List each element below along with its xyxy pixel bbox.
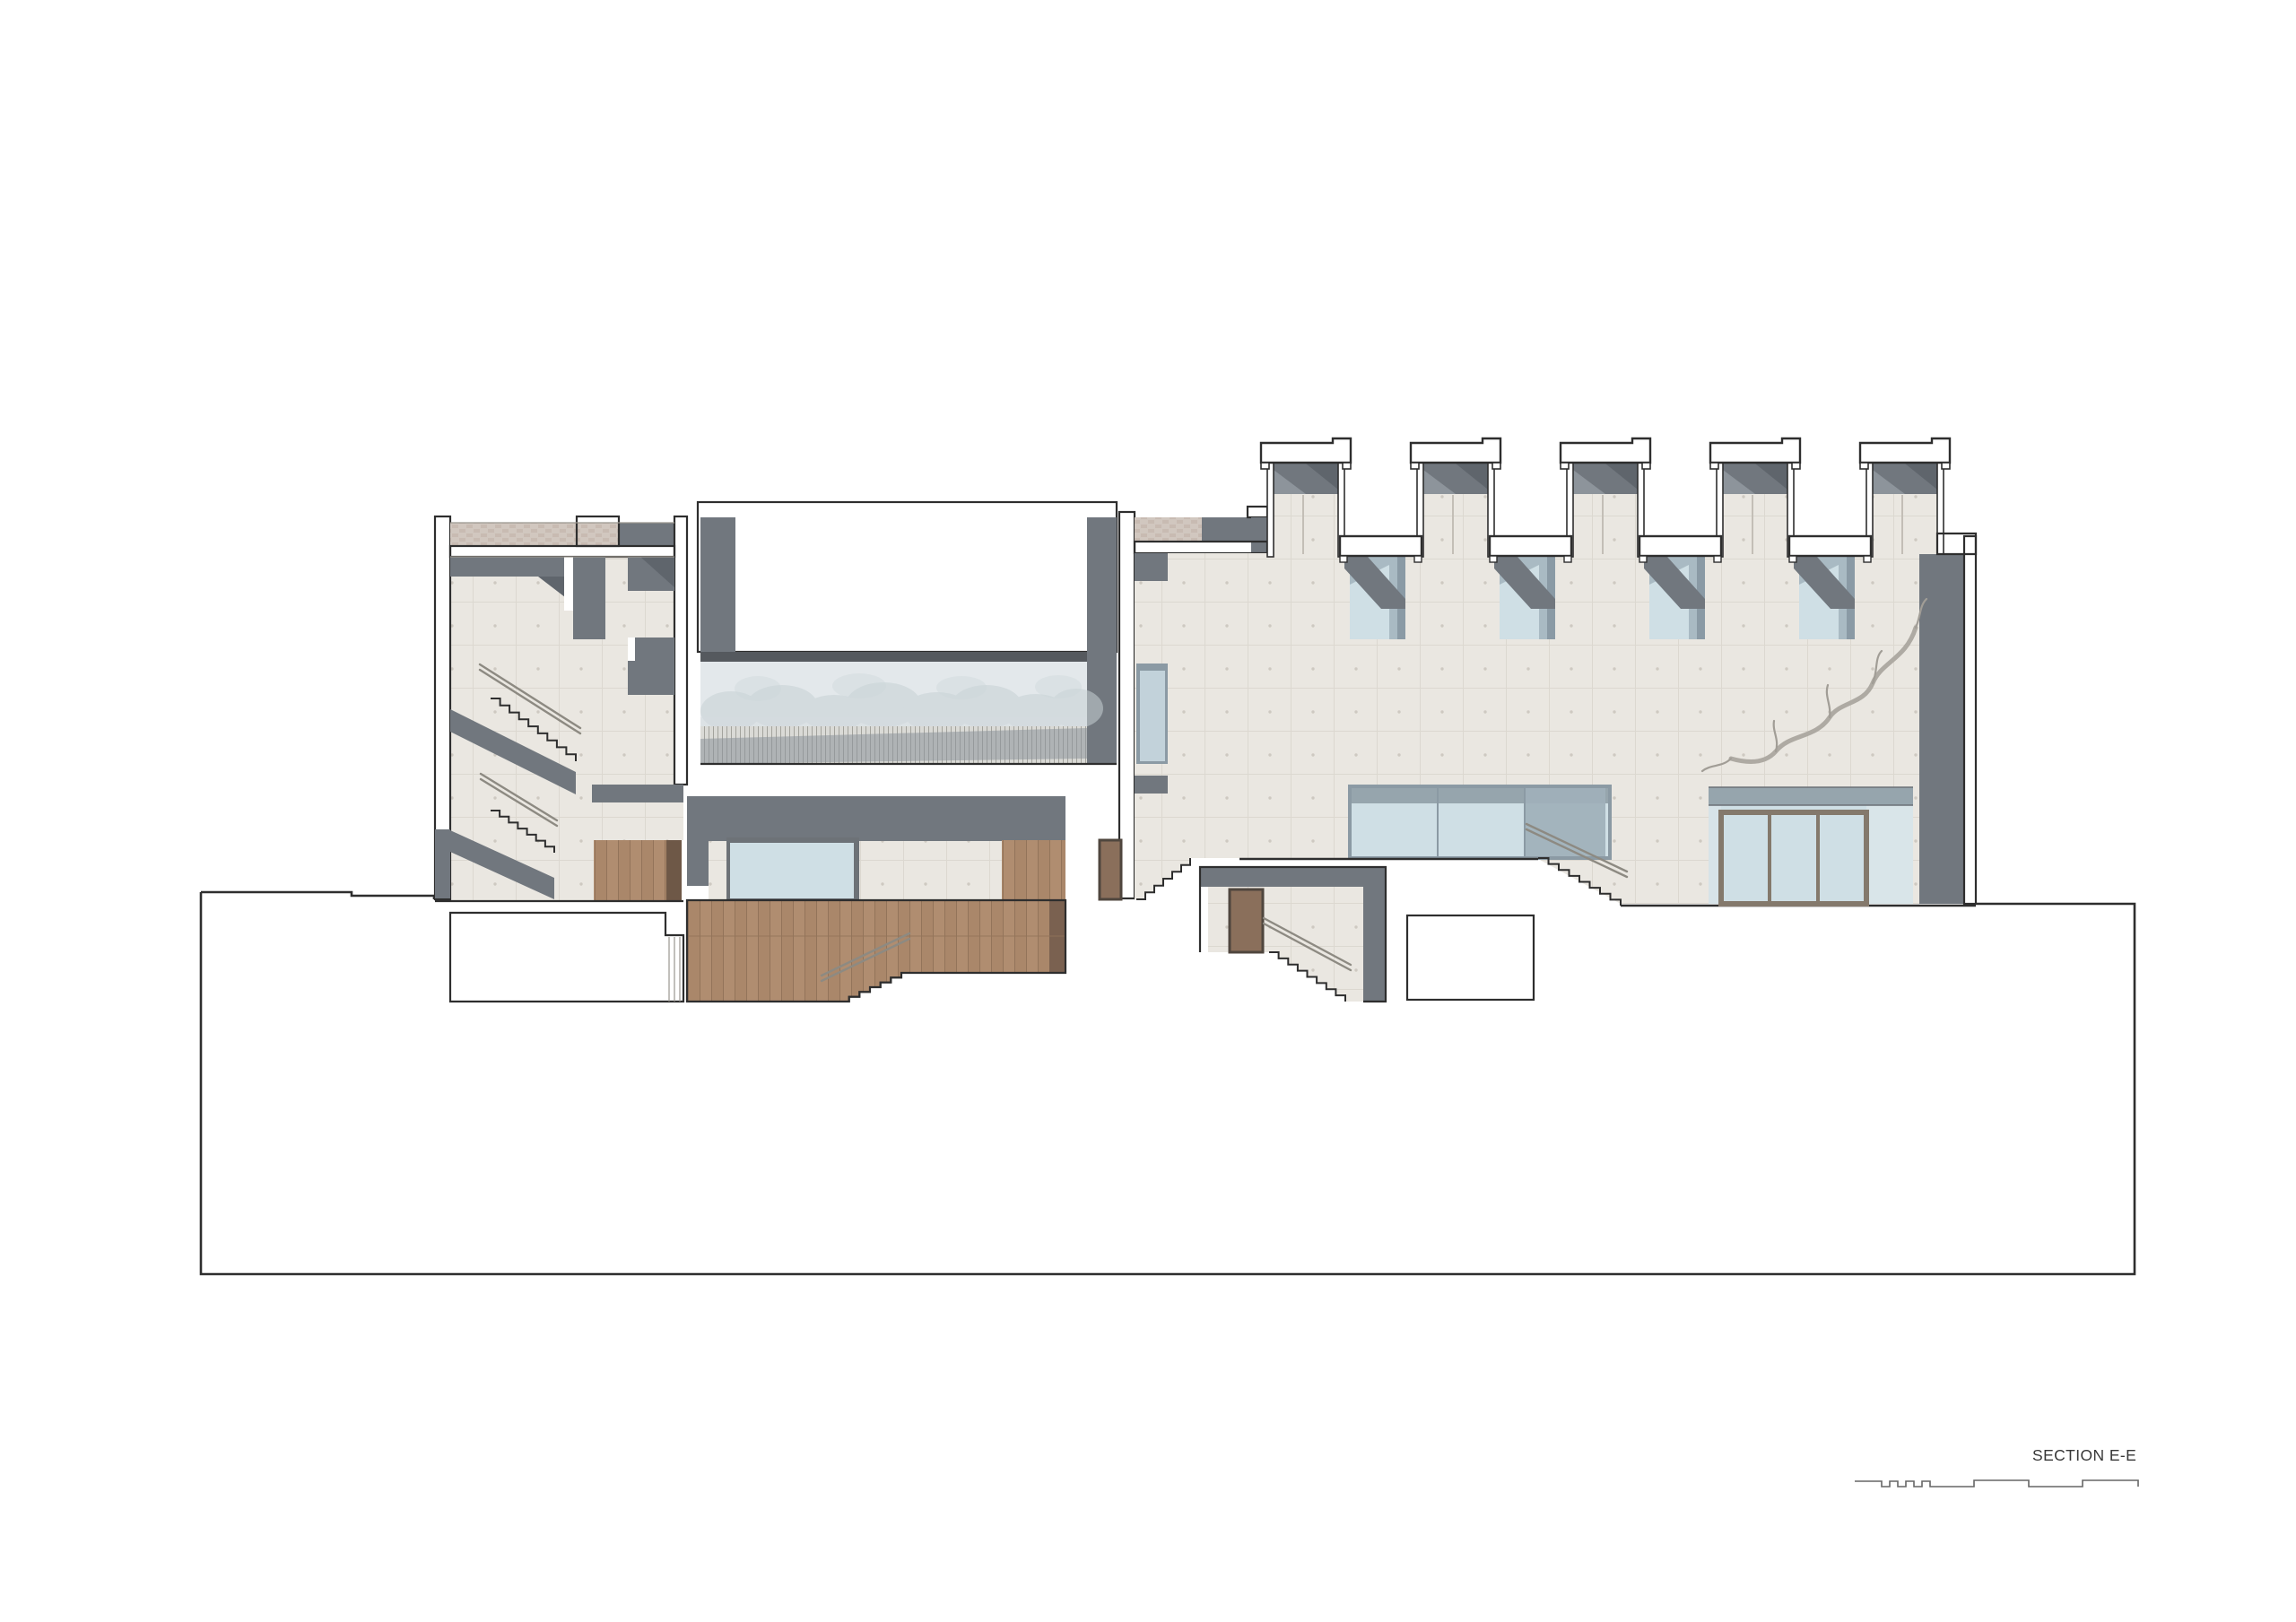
left-stair-block <box>435 516 687 901</box>
main-gallery <box>1168 438 1976 906</box>
gallery-lower-window <box>1348 785 1612 860</box>
roof-band <box>687 796 1065 841</box>
cut-wall-right <box>1919 554 1964 904</box>
terrain-outline <box>201 892 2135 1274</box>
left-light-well <box>450 913 683 1002</box>
drawing-title: SECTION E-E <box>2032 1446 2136 1464</box>
wood-door <box>1230 889 1263 952</box>
slat-screen <box>700 726 1117 764</box>
cut-wall <box>573 557 605 639</box>
section-key-profile <box>1855 1480 2138 1487</box>
wood-door <box>1100 840 1121 899</box>
section-drawing: SECTION E-E <box>0 0 2296 1622</box>
drawing-sheet: SECTION E-E <box>0 0 2296 1622</box>
corridor-window <box>1136 664 1170 764</box>
right-light-well <box>1407 915 1534 1000</box>
roof-slab-edge <box>700 652 1087 662</box>
roof-slab <box>450 546 674 557</box>
wood-hall-window <box>726 837 859 900</box>
cut-wall <box>435 829 450 898</box>
brick-roof-mass <box>698 502 1117 652</box>
right-entrance-glazing <box>1709 787 1913 904</box>
tree-reflection-window <box>700 662 1103 732</box>
wood-hall <box>687 796 1065 1002</box>
